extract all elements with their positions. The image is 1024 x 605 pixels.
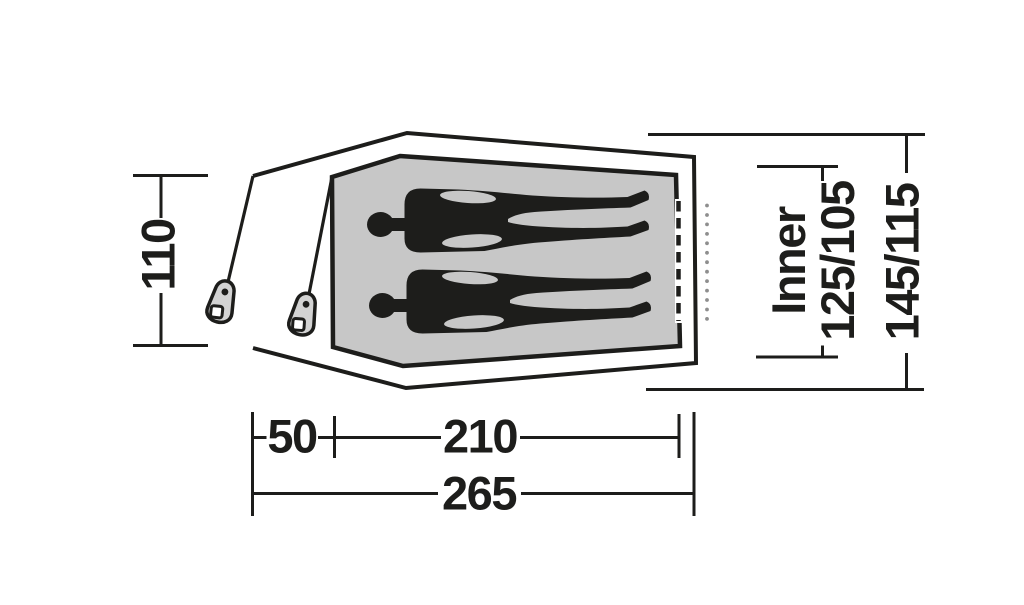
vent-dotted-line bbox=[705, 204, 709, 321]
guy-line-left bbox=[228, 176, 253, 282]
dim-265-label: 265 bbox=[442, 469, 516, 518]
dim-110-label: 110 bbox=[134, 219, 183, 290]
dim-inner-widths: 125/105 bbox=[813, 181, 862, 340]
dim-210-label: 210 bbox=[443, 412, 517, 461]
dim-inner-label: Inner 125/105 bbox=[764, 181, 862, 340]
dim-50-label: 50 bbox=[267, 412, 316, 461]
inner-tent-floor bbox=[332, 156, 680, 366]
dim-inner-word: Inner bbox=[764, 181, 813, 340]
dim-145-115-label: 145/115 bbox=[878, 184, 927, 341]
line-tensioner-left bbox=[205, 278, 240, 325]
tent-floorplan-diagram: 110 50 210 265 Inner 125/105 145/115 bbox=[0, 0, 1024, 605]
